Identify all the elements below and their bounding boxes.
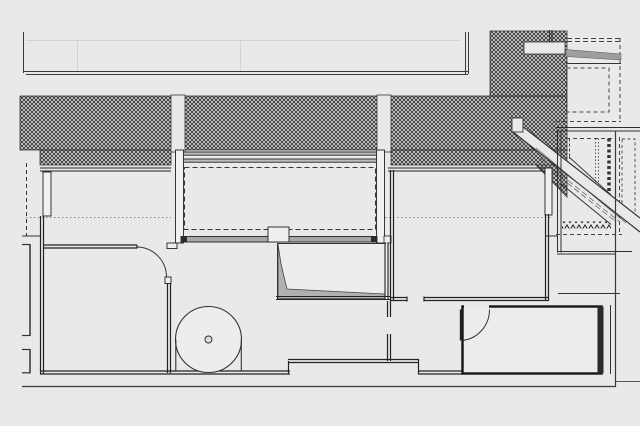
- roof-gap-right-pier: [377, 95, 391, 152]
- airspace-void: [276, 243, 390, 300]
- spiral-stair: [176, 307, 242, 373]
- terrace-glazing-upper: [183, 152, 377, 155]
- terrace-pier-right: [377, 150, 385, 243]
- parapet-end-left: [181, 236, 187, 243]
- bathroom-door-opening: [464, 304, 489, 310]
- roof-gap-left-pier: [171, 95, 185, 152]
- floor-plan-drawing: [0, 0, 640, 426]
- terrace-pier-left: [176, 150, 184, 243]
- parapet-end-right: [371, 236, 377, 243]
- bathroom-room: [461, 304, 611, 375]
- window-pier-right: [545, 168, 552, 215]
- window-pier-left: [43, 172, 51, 216]
- bathroom-right-wall: [598, 307, 604, 374]
- terrace-door-panel: [268, 227, 289, 242]
- terrace-glazing-lower: [183, 159, 377, 162]
- rooflight-cutout: [524, 42, 565, 54]
